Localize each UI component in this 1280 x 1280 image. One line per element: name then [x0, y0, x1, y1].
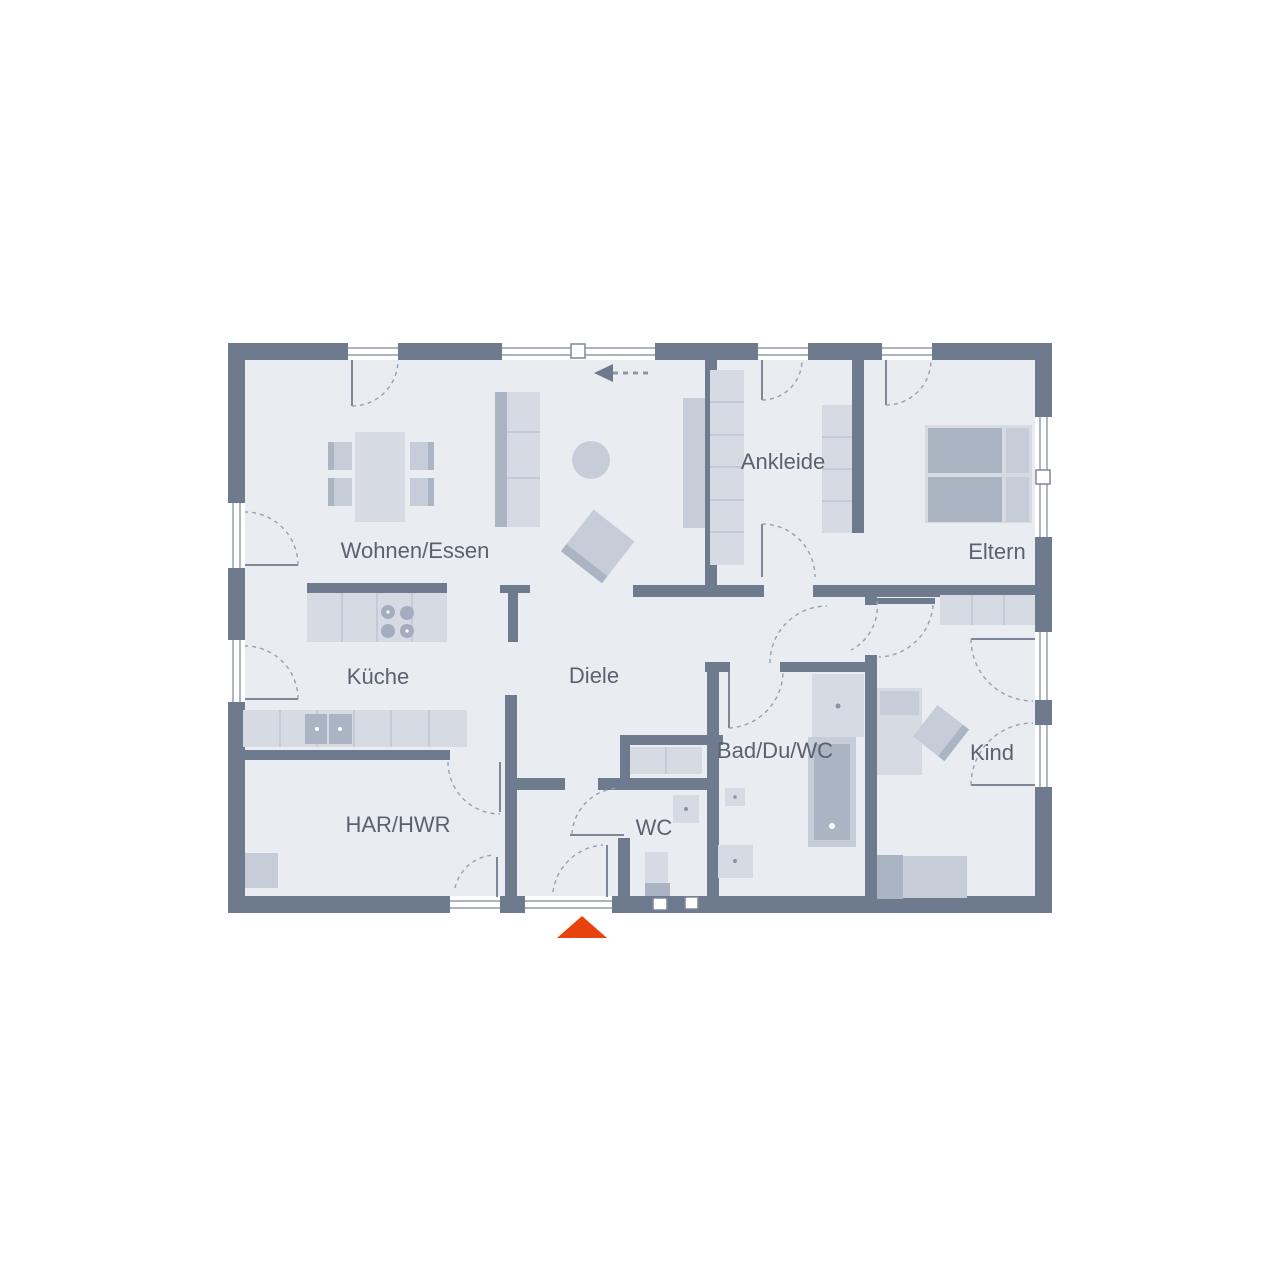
sofa-bed	[877, 855, 967, 899]
tall-cabinet	[683, 398, 705, 528]
kind-right-window-2	[1035, 725, 1052, 787]
wardrobe-top	[940, 595, 1035, 625]
window-symbol-icon	[1036, 470, 1050, 484]
dining-table	[355, 432, 405, 522]
room-label-ankleide: Ankleide	[741, 449, 825, 474]
ankleide-french-window	[758, 343, 808, 360]
room-label-bad-du-wc: Bad/Du/WC	[717, 738, 833, 763]
toilet-icon	[725, 788, 745, 806]
washbasin-icon	[673, 795, 699, 823]
room-label-kueche: Küche	[347, 664, 409, 689]
room-label-kind: Kind	[970, 740, 1014, 765]
dining-chair	[328, 442, 352, 470]
shower-icon	[812, 674, 864, 737]
vent-icon	[653, 898, 667, 910]
eltern-right-window	[1035, 417, 1052, 537]
kitchen-peninsula-counter	[307, 593, 447, 642]
entrance-triangle-icon	[557, 916, 607, 938]
kind-right-window-1	[1035, 632, 1052, 700]
double-bed	[925, 425, 1032, 523]
room-label-diele: Diele	[569, 663, 619, 688]
eltern-french-window	[882, 343, 932, 360]
appliance	[245, 853, 278, 888]
single-bed	[877, 688, 922, 775]
floor-plan: Wohnen/Essen Küche Diele Ankleide Eltern…	[0, 0, 1280, 1280]
room-label-wohnen-essen: Wohnen/Essen	[341, 538, 490, 563]
window-symbol-icon	[571, 344, 585, 358]
vent-icon	[685, 897, 698, 909]
entrance-door	[525, 896, 612, 913]
shelf-cabinet	[495, 392, 540, 527]
terrace-door-window	[348, 343, 398, 360]
utility-unit	[630, 747, 702, 774]
wardrobe-left	[710, 370, 744, 565]
dining-chair	[328, 478, 352, 506]
panorama-window	[502, 343, 655, 360]
furniture-eltern	[925, 425, 1032, 523]
side-table	[572, 441, 610, 479]
kitchen-counter	[243, 710, 467, 747]
dining-chair	[410, 442, 434, 470]
dining-chair	[410, 478, 434, 506]
kitchen-sink-icon	[305, 714, 352, 744]
room-label-wc: WC	[636, 815, 673, 840]
toilet-icon	[645, 852, 670, 896]
floor-plan-page: Wohnen/Essen Küche Diele Ankleide Eltern…	[0, 0, 1280, 1280]
kueche-left-window	[228, 640, 245, 702]
har-window	[450, 896, 500, 913]
wohnen-left-window	[228, 503, 245, 568]
washbasin-icon	[718, 845, 753, 878]
wardrobe-right	[822, 405, 852, 533]
room-label-har-hwr: HAR/HWR	[345, 812, 450, 837]
room-label-eltern: Eltern	[968, 539, 1025, 564]
kind-door-leaf	[877, 598, 935, 604]
furniture-har	[245, 853, 278, 888]
